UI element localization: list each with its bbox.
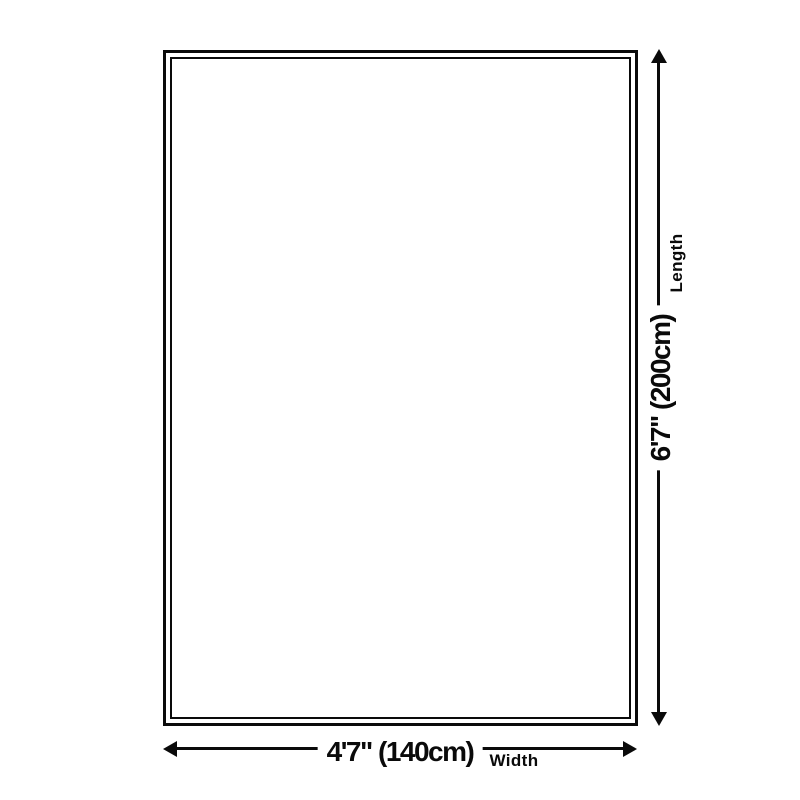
width-dimension-label: Width — [489, 751, 538, 771]
arrow-down-icon — [651, 712, 667, 726]
length-dimension-value: 6'7" (200cm) — [643, 306, 679, 471]
arrow-up-icon — [651, 49, 667, 63]
rug-outline — [163, 50, 638, 726]
length-dimension-label: Length — [667, 233, 687, 292]
width-dimension-value: 4'7" (140cm) — [318, 734, 483, 770]
rug-inner-border — [170, 57, 631, 719]
arrow-left-icon — [163, 741, 177, 757]
arrow-right-icon — [623, 741, 637, 757]
size-diagram: 6'7" (200cm) Length 4'7" (140cm) Width — [0, 0, 800, 800]
